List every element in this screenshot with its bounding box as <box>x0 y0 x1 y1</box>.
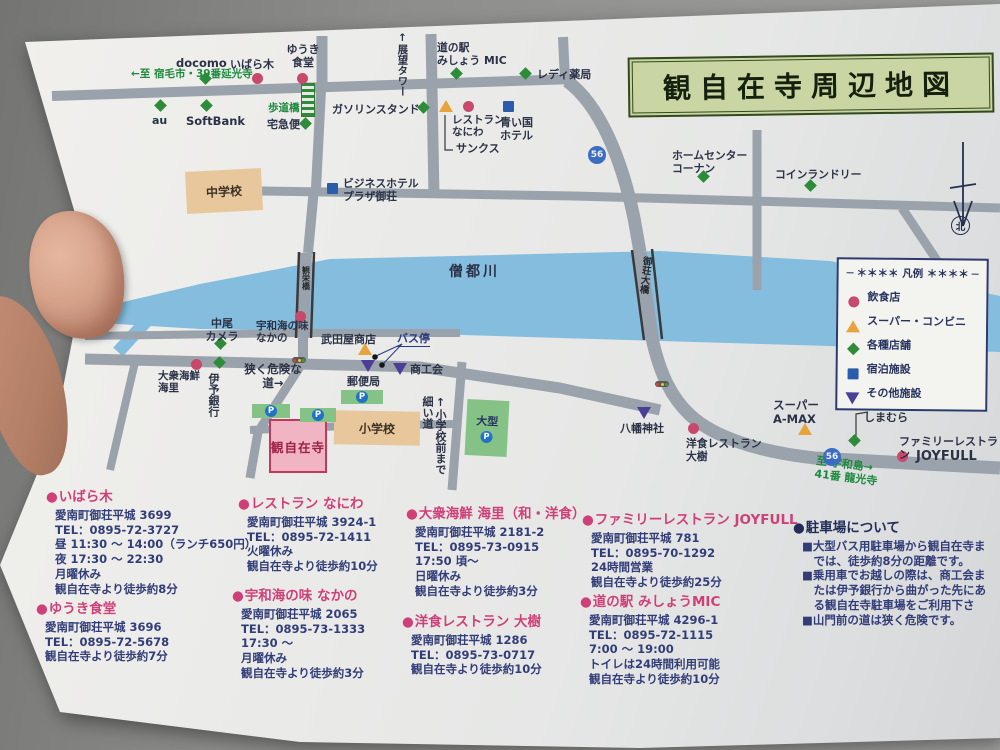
listing-details: 愛南町御荘平城 3696 TEL：0895-72-5678 観自在寺より徒歩約7… <box>45 620 169 664</box>
legend-box: ＊＊＊＊ 凡例 ＊＊＊＊ 飲食店スーパー・コンビニ各種店舗宿泊施設その他施設 <box>835 257 989 412</box>
legend-item-label: その他施設 <box>866 385 921 402</box>
listing-entry: ●いばら木愛南町御荘平城 3699 TEL：0895-72-3727 昼 11:… <box>46 485 256 596</box>
listing-heading: ●いばら木 <box>46 485 256 505</box>
photo-of-paper-map: 観自在寺周辺地図 ＊＊＊＊ 凡例 ＊＊＊＊ 飲食店スーパー・コンビニ各種店舗宿泊… <box>0 0 1000 750</box>
listing-details: 愛南町御荘平城 2065 TEL：0895-73-1333 17:30 ～ 月曜… <box>241 607 365 681</box>
listing-details: 愛南町御荘平城 4296-1 TEL：0895-72-1115 7:00 ～ 1… <box>589 613 720 687</box>
listing-entry: ●宇和海の味 なかの愛南町御荘平城 2065 TEL：0895-73-1333 … <box>232 584 365 681</box>
legend-item-label: 飲食店 <box>867 289 900 305</box>
listing-details: 愛南町御荘平城 3699 TEL：0895-72-3727 昼 11:30 ～ … <box>55 508 256 596</box>
listing-heading: ●道の駅 みしょうMIC <box>580 590 720 610</box>
listing-heading: ●宇和海の味 なかの <box>232 584 365 604</box>
legend-item-label: 宿泊施設 <box>867 361 911 377</box>
listing-entry: ●大衆海鮮 海里（和・洋食）愛南町御荘平城 2181-2 TEL：0895-73… <box>406 502 585 599</box>
paper-sheet-wrapper: 観自在寺周辺地図 ＊＊＊＊ 凡例 ＊＊＊＊ 飲食店スーパー・コンビニ各種店舗宿泊… <box>0 0 1000 750</box>
listing-heading: ●ファミリーレストラン JOYFULL <box>582 508 798 528</box>
listing-heading: ●駐車場について <box>793 516 986 536</box>
map-title-box: 観自在寺周辺地図 <box>628 52 995 117</box>
listing-heading: ●ゆうき食堂 <box>36 597 169 617</box>
listing-heading: ●大衆海鮮 海里（和・洋食） <box>406 502 585 522</box>
legend-item: 飲食店 <box>846 288 978 305</box>
listing-heading: ●洋食レストラン 大樹 <box>402 610 542 630</box>
listing-details: 愛南町御荘平城 3924-1 TEL：0895-72-1411 火曜休み 観自在… <box>247 515 378 574</box>
listing-heading: ●レストラン なにわ <box>238 492 378 512</box>
legend-item: 各種店舗 <box>846 336 978 353</box>
listing-details: 愛南町御荘平城 1286 TEL：0895-73-0717 観自在寺より徒歩約1… <box>411 633 542 677</box>
legend-item-label: スーパー・コンビニ <box>867 313 966 330</box>
marker-conv-icon <box>846 320 860 332</box>
listing-entry: ●レストラン なにわ愛南町御荘平城 3924-1 TEL：0895-72-141… <box>238 492 378 574</box>
listing-entry: ●駐車場について■大型バス用駐車場から観自在寺ま では、徒歩約8分の距離です。 … <box>793 516 986 627</box>
map-title: 観自在寺周辺地図 <box>632 57 991 114</box>
paper-sheet: 観自在寺周辺地図 ＊＊＊＊ 凡例 ＊＊＊＊ 飲食店スーパー・コンビニ各種店舗宿泊… <box>0 0 1000 750</box>
listing-entry: ●ゆうき食堂愛南町御荘平城 3696 TEL：0895-72-5678 観自在寺… <box>36 597 169 664</box>
listing-details: 愛南町御荘平城 781 TEL：0895-70-1292 24時間営業 観自在寺… <box>591 531 798 590</box>
legend-title: ＊＊＊＊ 凡例 ＊＊＊＊ <box>847 265 979 281</box>
marker-shop-icon <box>846 343 859 356</box>
listing-details: ■大型バス用駐車場から観自在寺ま では、徒歩約8分の距離です。 ■乗用車でお越し… <box>802 539 986 627</box>
legend-item: その他施設 <box>845 384 977 401</box>
marker-stay-icon <box>847 368 858 379</box>
marker-eat-icon <box>848 296 859 307</box>
marker-other-icon <box>845 392 859 404</box>
listing-details: 愛南町御荘平城 2181-2 TEL：0895-73-0915 17:50 頃～… <box>415 525 585 599</box>
legend-item: 宿泊施設 <box>846 360 978 377</box>
legend-item: スーパー・コンビニ <box>846 312 978 329</box>
listing-entry: ●洋食レストラン 大樹愛南町御荘平城 1286 TEL：0895-73-0717… <box>402 610 542 677</box>
listing-entry: ●道の駅 みしょうMIC愛南町御荘平城 4296-1 TEL：0895-72-1… <box>580 590 720 687</box>
listing-entry: ●ファミリーレストラン JOYFULL愛南町御荘平城 781 TEL：0895-… <box>582 508 798 590</box>
legend-item-label: 各種店舗 <box>867 337 911 353</box>
